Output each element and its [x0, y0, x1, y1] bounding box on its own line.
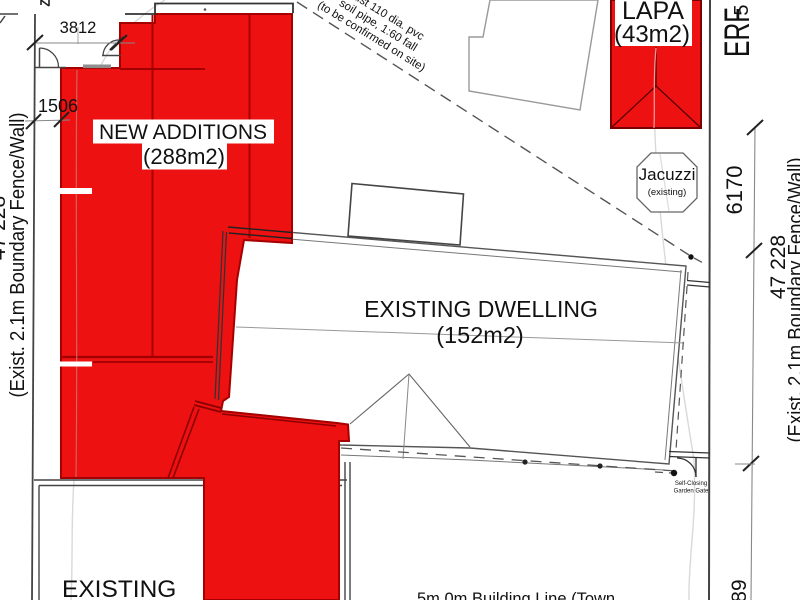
svg-text:47 228: 47 228	[0, 196, 10, 260]
svg-text:(Exist. 2.1m Boundary Fence/Wa: (Exist. 2.1m Boundary Fence/Wall)	[7, 113, 29, 398]
svg-text:Self-Closing: Self-Closing	[675, 481, 707, 487]
svg-text:3812: 3812	[60, 19, 97, 37]
svg-text:Garden Gate: Garden Gate	[674, 489, 709, 495]
svg-text:(43m2): (43m2)	[614, 21, 690, 48]
svg-text:EXISTING DWELLING: EXISTING DWELLING	[364, 296, 598, 322]
svg-text:(Exist. 2.1m Boundary Fence/Wa: (Exist. 2.1m Boundary Fence/Wall)	[785, 158, 800, 443]
svg-text:ERF 5: ERF 5	[718, 0, 757, 57]
svg-text:5m 0m Building Line (Town: 5m 0m Building Line (Town	[417, 590, 615, 600]
svg-text:(152m2): (152m2)	[436, 322, 524, 348]
svg-text:(288m2): (288m2)	[143, 144, 225, 169]
svg-text:NEW ADDITIONS: NEW ADDITIONS	[99, 121, 267, 144]
svg-text:EXISTING: EXISTING	[62, 576, 176, 600]
svg-text:6170: 6170	[722, 166, 747, 215]
svg-text:Jacuzzi: Jacuzzi	[639, 165, 696, 184]
svg-text:(existing): (existing)	[648, 187, 687, 198]
svg-text:89: 89	[728, 579, 751, 600]
svg-text:1506: 1506	[38, 96, 78, 116]
